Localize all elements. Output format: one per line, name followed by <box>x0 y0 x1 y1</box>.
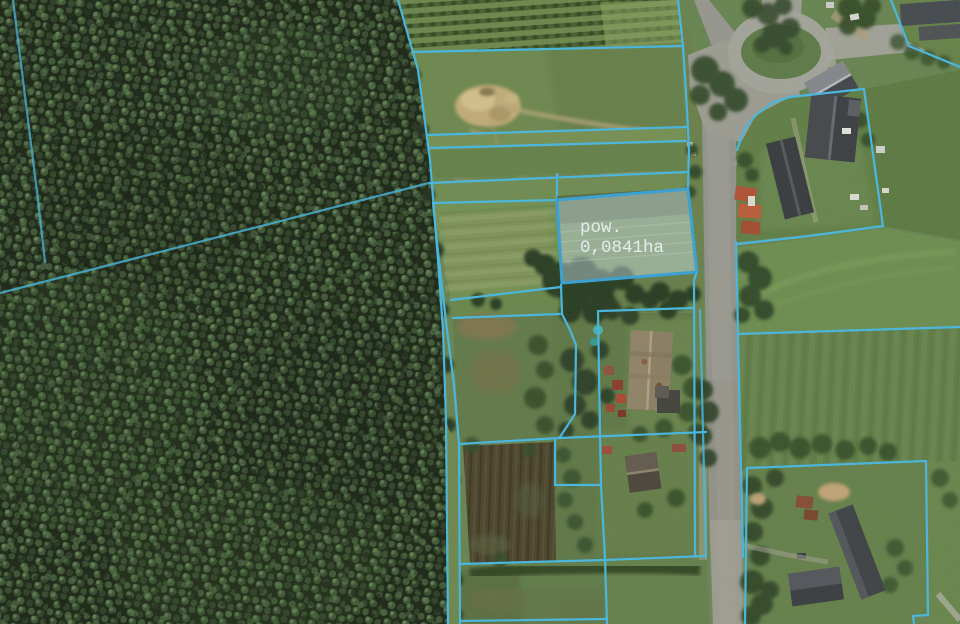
svg-text:0,0841ha: 0,0841ha <box>580 238 664 258</box>
svg-text:pow.: pow. <box>580 218 622 238</box>
